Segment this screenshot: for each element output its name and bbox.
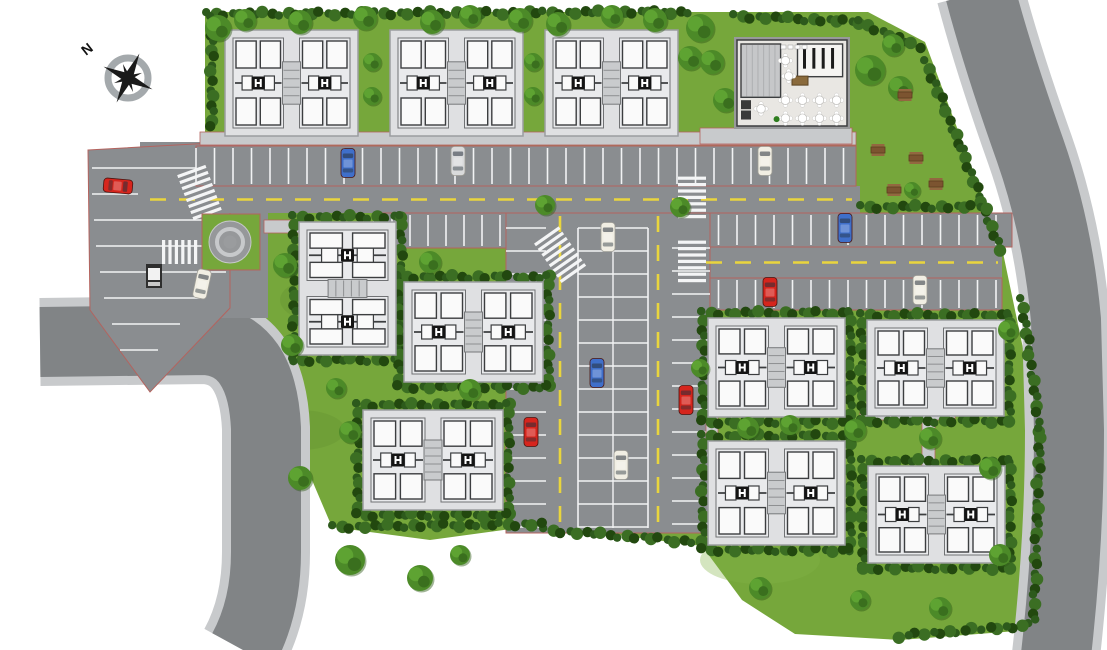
tree-shade [430,20,441,31]
core-h-mark [740,492,744,494]
crosswalk-stripe [181,240,184,264]
building-hedge [383,510,395,522]
car-rear-window [592,379,602,383]
hedge-row [729,10,737,18]
hedge-row [205,121,215,131]
core-h-mark [740,367,744,369]
hedge-row [207,90,219,102]
building-hedge [857,375,867,385]
room [491,325,502,339]
room [745,381,766,406]
hedge-row [1022,320,1030,328]
hedge-row [537,518,547,528]
room [556,98,576,125]
room [511,293,532,318]
room [719,452,740,478]
hedge-row [744,13,754,23]
stair-core [768,348,786,388]
core-h-mark [576,82,580,84]
kitchen-unit [741,100,751,109]
hedge-row [968,168,976,176]
hedge-row [915,43,925,53]
room [353,233,385,248]
picnic-table [871,144,885,156]
building-hedge [289,357,297,365]
room [749,361,760,375]
hedge-row [400,524,408,532]
room [878,381,899,405]
building-hedge [352,399,360,407]
room [492,41,512,68]
room [794,361,805,375]
building-hedge [424,513,432,521]
restroom-stall [822,48,825,69]
roundabout-center [224,236,237,249]
restroom-stall [831,48,834,69]
hedge-row [687,539,695,547]
core-h-mark [466,459,470,461]
picnic-bench [899,89,912,92]
hedge-row [1024,334,1034,344]
hedge-row [1031,573,1043,585]
tree-shade [746,426,756,436]
hedge-row [856,201,864,209]
tree-shade [418,576,430,588]
building-hedge [1003,309,1011,317]
tree-shade [532,60,540,68]
tree-shade [459,553,468,562]
room [322,248,338,262]
building-hedge [697,307,705,315]
core-h-mark [968,367,972,369]
hedge-row [1028,374,1040,386]
parking-row-row-2-right [700,213,1012,247]
building-hedge [304,357,314,367]
room [948,528,969,552]
site-plan-canvas: N [0,0,1107,650]
picnic-tabletop [871,147,885,153]
building-hedge [543,335,553,345]
room [972,331,993,355]
building-hedge [503,463,513,473]
room [485,346,506,371]
hedge-row [629,533,639,543]
stair-core [424,440,442,480]
room [309,76,319,90]
counter-item [781,45,786,49]
hedge-row [871,204,881,214]
hedge-row [977,626,985,634]
parked-car-red [103,178,133,194]
tree-shade [298,20,309,31]
room [817,361,828,375]
building-hedge [848,401,856,409]
building-hedge [911,307,923,319]
building-hedge [845,496,855,506]
tree-shade [911,189,918,196]
room [904,381,925,405]
building-hedge [1004,455,1012,463]
core-h-mark [346,321,350,323]
tree-shade [518,18,529,29]
stair-core [448,62,466,104]
tree-shade [468,14,478,24]
car-windshield [453,152,463,157]
hedge-row [994,244,1006,256]
hedge-row [782,11,794,23]
room [415,346,436,371]
core-h-mark [900,514,904,516]
core-h-mark [899,367,903,369]
core-h-mark [396,459,400,461]
room [492,98,512,125]
room [401,41,421,68]
room [374,474,396,499]
room [904,331,925,355]
room [404,453,415,467]
picnic-bench [899,98,912,101]
car-windshield [760,152,770,157]
room [470,421,492,446]
building-hedge [845,384,857,396]
building-hedge [912,453,924,465]
room [470,474,492,499]
car-rear-window [616,471,626,475]
car-roof [766,289,775,297]
hedge-row [1033,488,1043,498]
room [444,421,466,446]
hedge-row [1003,622,1011,630]
building-hedge [439,511,449,521]
tree-shade [653,18,664,29]
car-roof [593,370,602,378]
restroom-stall [812,48,815,69]
building-hedge [872,418,882,428]
core-h-mark [969,514,973,516]
building-hedge [713,419,723,429]
hedge-row [343,523,353,533]
room [817,486,828,500]
room [425,41,445,68]
hedge-row [1031,407,1041,417]
hedge-row [959,151,971,163]
car-rear-window [765,298,775,302]
pedestrian-path [700,128,852,144]
hedge-row [1035,520,1043,528]
room [468,41,488,68]
picnic-table [929,178,943,190]
tree-shade [928,436,938,446]
room [623,41,643,68]
core-h-mark [421,82,425,84]
hedge-row [571,528,583,540]
core-h-mark [323,82,327,84]
building-hedge [506,494,514,502]
picnic-tabletop [898,92,912,98]
hedge-row [538,7,546,15]
hedge-row [960,625,970,635]
hedge-row [893,632,905,644]
building-hedge [424,382,436,394]
room [745,452,766,478]
tree-shade [290,343,300,353]
hedge-row [944,625,956,637]
room [441,346,462,371]
room [322,315,338,329]
building-pair-L1 [299,222,396,355]
tree-shade [938,606,948,616]
car-roof [344,160,353,168]
car-roof [761,158,770,166]
tree-shade [853,428,863,438]
car-roof [617,462,626,470]
hedge-row [1033,502,1045,514]
tree-shade [688,56,699,67]
room [788,452,809,478]
room [445,325,456,339]
room [511,346,532,371]
building-hedge [810,306,820,316]
stair-core [927,349,945,387]
stair-core [928,495,946,534]
hedge-row [1030,534,1040,544]
hedge-row [905,37,917,49]
car-roof [682,397,691,405]
building-pair-T1 [225,30,358,136]
room [794,486,805,500]
building-pair-T3 [545,30,678,136]
building-hedge [351,508,361,518]
hedge-row [1033,392,1041,400]
crosswalk-stripe [678,247,706,250]
building-hedge [844,307,852,315]
car-windshield [592,364,602,369]
counter-item [802,45,807,49]
building-hedge [517,383,529,395]
crosswalk-stripe [678,279,706,282]
room [878,331,899,355]
tree-shade [710,60,721,71]
building-hedge [542,271,550,279]
hedge-row [207,76,217,86]
hedge-row [854,16,862,24]
picnic-table [909,152,923,164]
building-hedge [930,419,938,427]
hedge-row [510,521,520,531]
hedge-row [986,220,998,232]
car-windshield [915,281,925,286]
building-hedge [847,470,857,480]
room [400,421,422,446]
room [374,421,396,446]
building-hedge [713,547,723,557]
room [948,477,969,501]
building-hedge [826,546,838,558]
hedge-row [943,203,953,213]
building-hedge [969,308,979,318]
counter-item [788,45,793,49]
room [725,361,736,375]
tree-shade [789,423,798,432]
building-hedge [288,211,296,219]
building-hedge [700,332,708,340]
car-rear-window [526,438,536,442]
room [580,41,600,68]
building-pair-L2 [404,282,543,382]
room [422,325,433,339]
tree-shade [428,260,438,270]
tree-shade [998,553,1008,563]
core-h-mark [437,331,441,333]
hedge-row [995,237,1003,245]
room [788,329,809,354]
room [905,528,926,552]
picnic-bench [910,152,923,155]
picnic-tabletop [929,181,943,187]
crosswalk-stripe [678,273,706,276]
building-hedge [1007,481,1015,489]
tree-shade [335,386,344,395]
hedge-row [1030,477,1042,489]
building-hedge [396,296,404,304]
crosswalk-stripe [678,260,706,263]
car-roof [604,234,613,242]
car-windshield [123,181,128,192]
parked-car-white [913,276,927,305]
building-hedge [700,456,708,464]
car-roof [916,287,925,295]
building-hedge [970,454,980,464]
building-hedge [889,563,901,575]
building-pair-R1 [708,318,845,417]
building-hedge [858,522,868,532]
building-hedge [752,305,764,317]
room [260,41,280,68]
tree-shade [283,263,294,274]
hedge-row [204,65,216,77]
car-roof [113,181,122,191]
hedge-row [945,115,955,125]
room [303,98,323,125]
hedge-row [1034,424,1042,432]
building-hedge [395,219,407,231]
picnic-bench [888,184,901,187]
car-windshield [840,219,850,224]
picnic-tabletop [887,187,901,193]
building-hedge [503,477,515,489]
core-h-mark [809,492,813,494]
hedge-row [930,628,938,636]
building-hedge [1004,390,1016,402]
building-hedge [395,211,403,219]
building-hedge [408,384,418,394]
hedge-row [1033,545,1041,553]
stair-core [603,62,621,104]
room [468,98,488,125]
building-hedge [398,236,406,244]
core-h-mark [809,367,813,369]
room [908,361,919,375]
room [584,76,594,90]
room [813,452,834,478]
building-hedge [1006,349,1016,359]
hedge-row [328,521,336,529]
car-rear-window [603,243,613,247]
parked-car-white [601,223,615,252]
room [381,453,392,467]
tree-shade [532,94,540,102]
hedge-row [1016,619,1028,631]
hedge-row [932,79,940,87]
site-plan-svg: N [0,0,1107,650]
room [562,76,572,90]
tree-shade [348,557,362,571]
room [879,528,900,552]
room [977,508,988,522]
room [947,331,968,355]
room [407,76,417,90]
hedge-row [626,8,636,18]
room [647,41,667,68]
building-hedge [1004,375,1014,385]
building-hedge [398,250,408,260]
room [813,329,834,354]
crosswalk-stripe [678,253,706,256]
hedge-row [569,7,581,19]
room [429,76,439,90]
building-hedge [855,511,867,523]
room [623,98,643,125]
car-windshield [526,423,536,428]
room [327,98,347,125]
room [954,508,965,522]
hedge-row [683,9,691,17]
hedge-row [887,202,899,214]
room [310,329,342,344]
building-hedge [854,364,866,376]
building-hedge [873,565,883,575]
room [415,293,436,318]
room [647,98,667,125]
stair-core [328,280,367,298]
tree-shade [758,586,768,596]
parked-car-red [679,386,693,415]
building-pair-T2 [390,30,523,136]
building-pair-R2 [867,320,1004,416]
room [813,508,834,534]
hedge-row [869,25,879,35]
building-hedge [859,335,867,343]
room [788,508,809,534]
room [745,508,766,534]
building-hedge [857,562,869,574]
building-hedge [1007,407,1015,415]
crosswalk-stripe [678,241,706,244]
building-pair-L3 [363,410,503,510]
crosswalk-stripe [168,240,171,264]
hedge-row [927,205,935,213]
building-hedge [543,349,555,361]
room [485,293,506,318]
tree-shade [698,26,711,39]
tree-shade [868,67,882,81]
crosswalk-stripe [678,266,706,269]
picnic-bench [888,193,901,196]
building-hedge [696,415,706,425]
tree-shade [216,26,228,38]
room [580,98,600,125]
building-hedge [505,438,515,448]
